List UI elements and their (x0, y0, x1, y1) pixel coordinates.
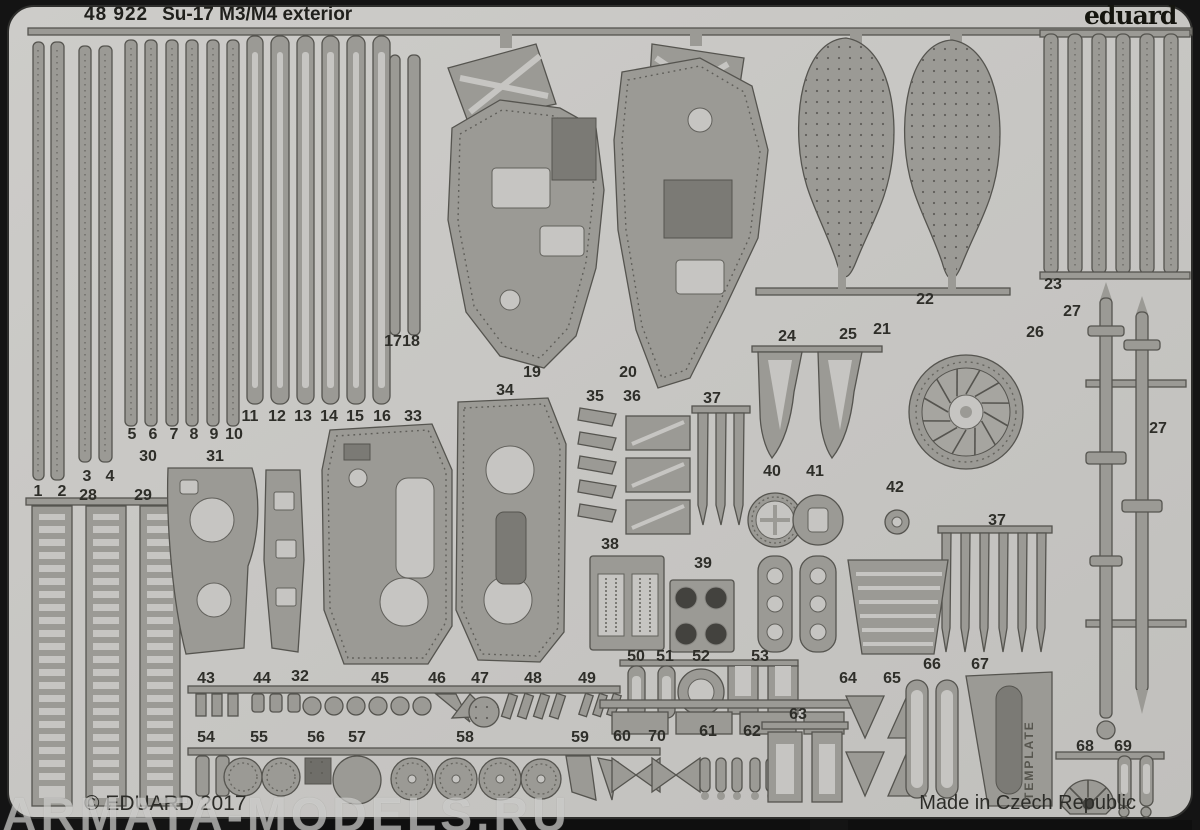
pe-sheet-photo: 48 922Su-17 M3/M4 exterior eduard © EDUA… (0, 0, 1200, 830)
product-name: Su-17 M3/M4 exterior (162, 4, 352, 25)
bracket-parts-30-31 (168, 468, 304, 654)
made-in-text: Made in Czech Republic (896, 792, 1136, 815)
ladder-strips-28-29 (26, 498, 191, 806)
sheet-header: 48 922Su-17 M3/M4 exterior (84, 4, 352, 26)
eduard-logo: eduard (1084, 1, 1176, 30)
product-code: 48 922 (84, 4, 148, 25)
fan-part-26 (909, 355, 1023, 469)
watermark-text: ARMATA-MODELS.RU (2, 788, 571, 830)
template-label: TEMPLATE (1022, 684, 1036, 800)
pe-sheet-graphic (0, 0, 1200, 830)
